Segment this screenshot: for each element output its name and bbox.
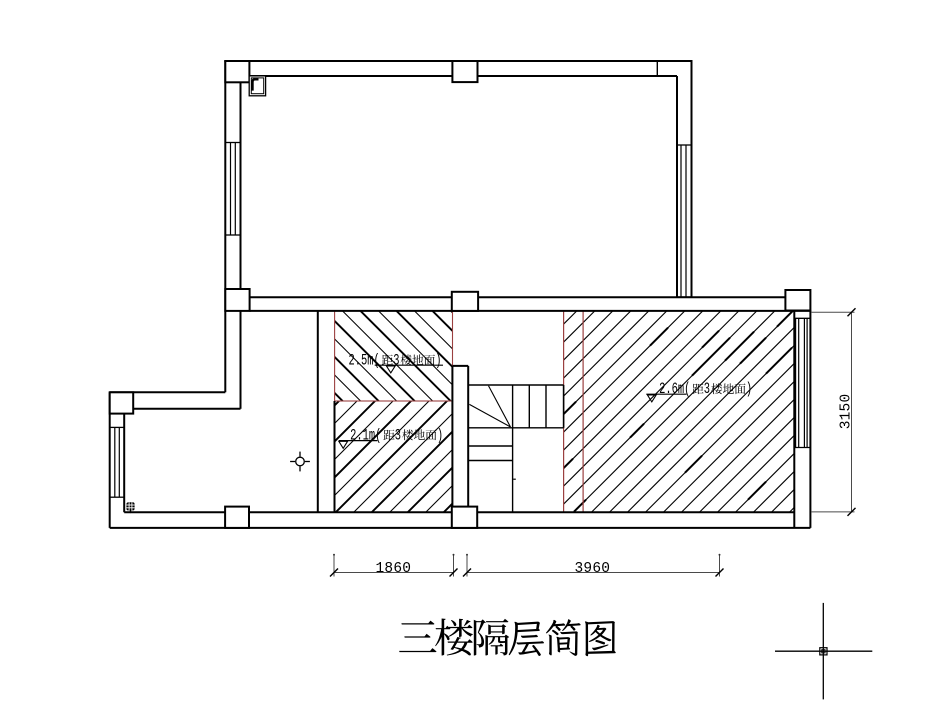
svg-text:): ) xyxy=(437,427,443,445)
svg-text:): ) xyxy=(746,381,752,399)
svg-text:3: 3 xyxy=(395,427,401,445)
svg-text:3: 3 xyxy=(704,381,710,399)
svg-text:3960: 3960 xyxy=(575,561,611,577)
svg-text:2.6m(: 2.6m( xyxy=(659,381,690,399)
svg-text:2.1m(: 2.1m( xyxy=(350,427,381,445)
svg-text:2.5m(: 2.5m( xyxy=(349,352,380,370)
svg-text:1860: 1860 xyxy=(376,561,412,577)
svg-text:): ) xyxy=(435,352,441,370)
svg-text:3150: 3150 xyxy=(839,394,855,430)
